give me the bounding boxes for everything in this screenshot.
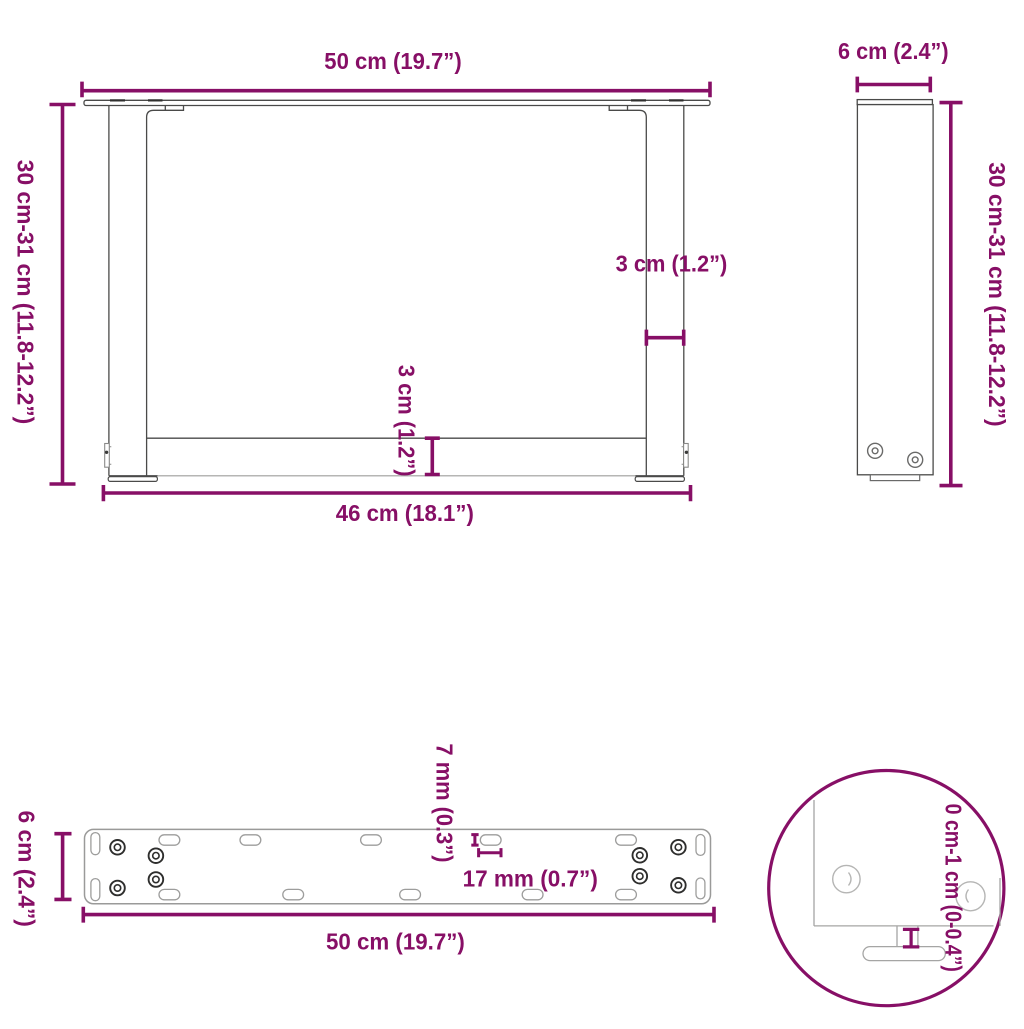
svg-text:7 mm (0.3”): 7 mm (0.3”) bbox=[431, 744, 457, 863]
svg-text:17 mm (0.7”): 17 mm (0.7”) bbox=[463, 865, 598, 891]
svg-text:46 cm (18.1”): 46 cm (18.1”) bbox=[336, 501, 474, 526]
svg-text:6 cm (2.4”): 6 cm (2.4”) bbox=[838, 38, 949, 64]
svg-text:0 cm-1 cm (0-0.4”): 0 cm-1 cm (0-0.4”) bbox=[940, 804, 966, 972]
svg-text:30 cm-31 cm (11.8-12.2”): 30 cm-31 cm (11.8-12.2”) bbox=[984, 162, 1010, 426]
svg-text:3 cm (1.2”): 3 cm (1.2”) bbox=[616, 251, 728, 277]
svg-text:6 cm (2.4”): 6 cm (2.4”) bbox=[13, 811, 39, 927]
svg-text:30 cm-31 cm (11.8-12.2”): 30 cm-31 cm (11.8-12.2”) bbox=[12, 160, 38, 424]
svg-text:50 cm (19.7”): 50 cm (19.7”) bbox=[326, 928, 465, 954]
svg-text:50 cm (19.7”): 50 cm (19.7”) bbox=[324, 49, 461, 75]
svg-text:3 cm (1.2”): 3 cm (1.2”) bbox=[393, 365, 419, 477]
